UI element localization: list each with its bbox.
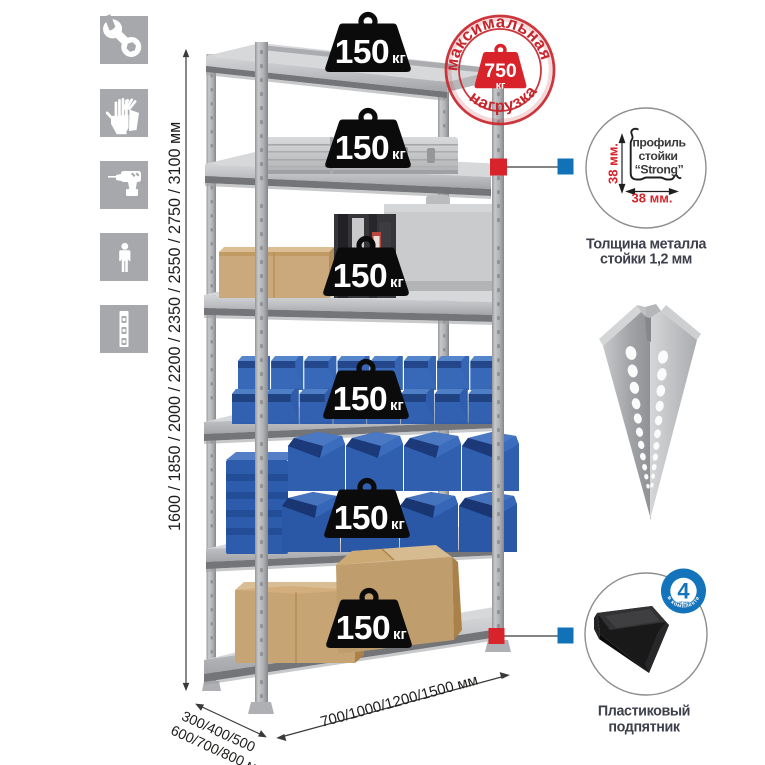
svg-text:профиль: профиль bbox=[632, 136, 686, 150]
svg-text:кг: кг bbox=[496, 80, 506, 92]
svg-text:150: 150 bbox=[334, 500, 388, 537]
svg-text:стойки 1,2 мм: стойки 1,2 мм bbox=[600, 252, 692, 268]
svg-text:кг: кг bbox=[390, 397, 404, 414]
svg-text:38 мм.: 38 мм. bbox=[606, 143, 621, 184]
svg-text:Пластиковый: Пластиковый bbox=[598, 704, 690, 720]
svg-text:Толщина металла: Толщина металла bbox=[586, 237, 708, 253]
svg-text:“Strong”: “Strong” bbox=[635, 163, 684, 177]
svg-text:кг: кг bbox=[391, 516, 405, 533]
svg-text:150: 150 bbox=[335, 34, 389, 71]
svg-text:150: 150 bbox=[336, 610, 390, 647]
svg-text:кг: кг bbox=[390, 274, 404, 291]
svg-text:кг: кг bbox=[393, 626, 407, 643]
svg-text:38 мм.: 38 мм. bbox=[632, 191, 673, 206]
svg-text:150: 150 bbox=[333, 258, 387, 295]
svg-text:подпятник: подпятник bbox=[608, 720, 680, 736]
svg-text:кг: кг bbox=[392, 50, 406, 67]
svg-text:150: 150 bbox=[335, 130, 389, 167]
svg-text:1600 / 1850 / 2000 / 2200 / 23: 1600 / 1850 / 2000 / 2200 / 2350 / 2550 … bbox=[166, 122, 184, 531]
svg-text:кг: кг bbox=[392, 146, 406, 163]
svg-text:150: 150 bbox=[333, 381, 387, 418]
svg-text:стойки: стойки bbox=[638, 149, 677, 163]
